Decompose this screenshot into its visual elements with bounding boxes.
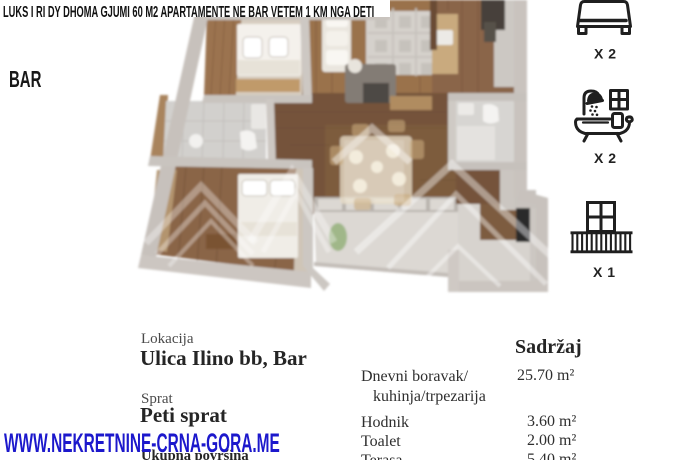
svg-text:X 1: X 1 [593,264,616,280]
svg-text:X 2: X 2 [594,46,617,62]
svg-text:X 2: X 2 [594,150,617,166]
